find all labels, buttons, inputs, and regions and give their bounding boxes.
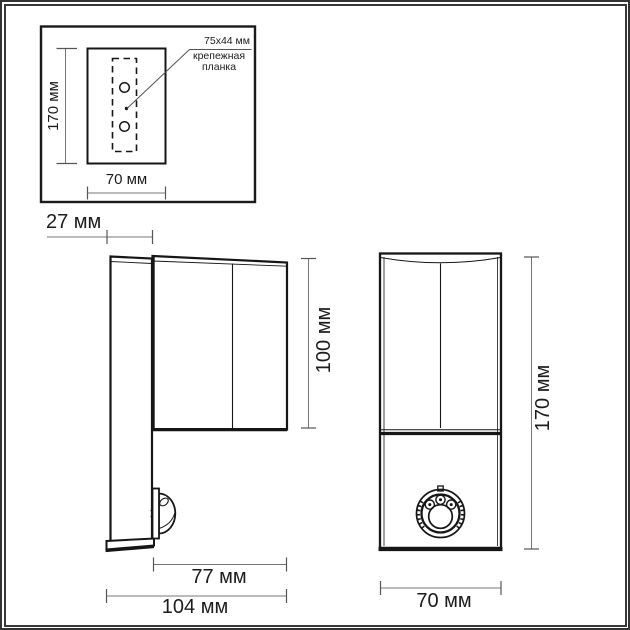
lamp-body-side	[153, 256, 288, 430]
total-height-dimension-label: 170 мм	[533, 348, 553, 448]
body-depth-dimension-label: 77 мм	[159, 567, 279, 588]
total-depth-dimension-label: 104 мм	[135, 597, 255, 618]
bracket-callout-name-label: крепежная планка	[169, 51, 269, 73]
wall-plate-side	[111, 257, 153, 542]
inset-height-dimension-label: 170 мм	[46, 66, 64, 146]
dimension-drawing: 170 мм 70 мм 75x44 мм крепежная планка 2…	[0, 0, 630, 630]
back-depth-dimension-label: 27 мм	[46, 212, 101, 233]
side-view	[47, 230, 316, 603]
motion-sensor-side	[151, 489, 176, 539]
bracket-callout-size-label: 75x44 мм	[150, 36, 250, 47]
sensor-mount-bar	[153, 489, 160, 539]
inset-width-dimension-label: 70 мм	[86, 172, 167, 188]
bracket-callout-name-line2: планка	[169, 62, 269, 73]
front-view	[379, 254, 540, 596]
backplate-outline	[88, 49, 166, 164]
body-height-dimension-label: 100 мм	[314, 295, 334, 385]
front-width-dimension-label: 70 мм	[384, 591, 504, 612]
